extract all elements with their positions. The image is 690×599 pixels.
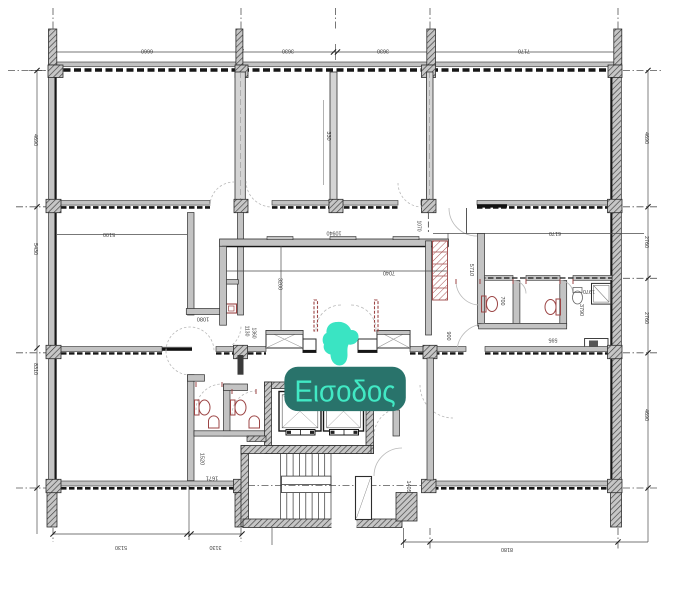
- svg-text:1080: 1080: [197, 316, 209, 322]
- svg-text:3200: 3200: [277, 278, 283, 290]
- svg-text:1360: 1360: [251, 327, 257, 338]
- svg-text:330: 330: [325, 131, 331, 140]
- svg-text:3630: 3630: [377, 48, 389, 54]
- svg-text:6170: 6170: [549, 230, 561, 236]
- svg-text:10940: 10940: [327, 230, 342, 236]
- svg-text:4690: 4690: [643, 409, 649, 421]
- svg-text:900: 900: [445, 332, 451, 341]
- svg-text:7040: 7040: [383, 270, 395, 276]
- svg-text:3630: 3630: [282, 48, 294, 54]
- svg-text:1520: 1520: [199, 453, 205, 465]
- svg-text:7170: 7170: [518, 48, 530, 54]
- svg-text:3790: 3790: [578, 304, 584, 316]
- svg-text:Εισοδος: Εισοδος: [295, 374, 396, 409]
- svg-text:1070: 1070: [416, 220, 422, 231]
- svg-text:1130: 1130: [244, 326, 250, 337]
- svg-text:8180: 8180: [501, 546, 513, 552]
- svg-text:5130: 5130: [115, 544, 127, 550]
- svg-text:2760: 2760: [643, 236, 649, 248]
- svg-text:5100: 5100: [103, 231, 115, 237]
- svg-text:6660: 6660: [141, 48, 153, 54]
- svg-text:8310: 8310: [32, 363, 38, 375]
- svg-text:4690: 4690: [32, 134, 38, 146]
- svg-text:595: 595: [549, 337, 558, 343]
- svg-text:2760: 2760: [643, 312, 649, 324]
- svg-text:5710: 5710: [468, 264, 474, 276]
- svg-text:1671: 1671: [206, 475, 218, 481]
- svg-text:3130: 3130: [210, 544, 222, 550]
- svg-text:4690: 4690: [643, 132, 649, 144]
- svg-text:5430: 5430: [32, 243, 38, 255]
- svg-text:1405: 1405: [405, 481, 411, 493]
- svg-text:700: 700: [499, 297, 505, 306]
